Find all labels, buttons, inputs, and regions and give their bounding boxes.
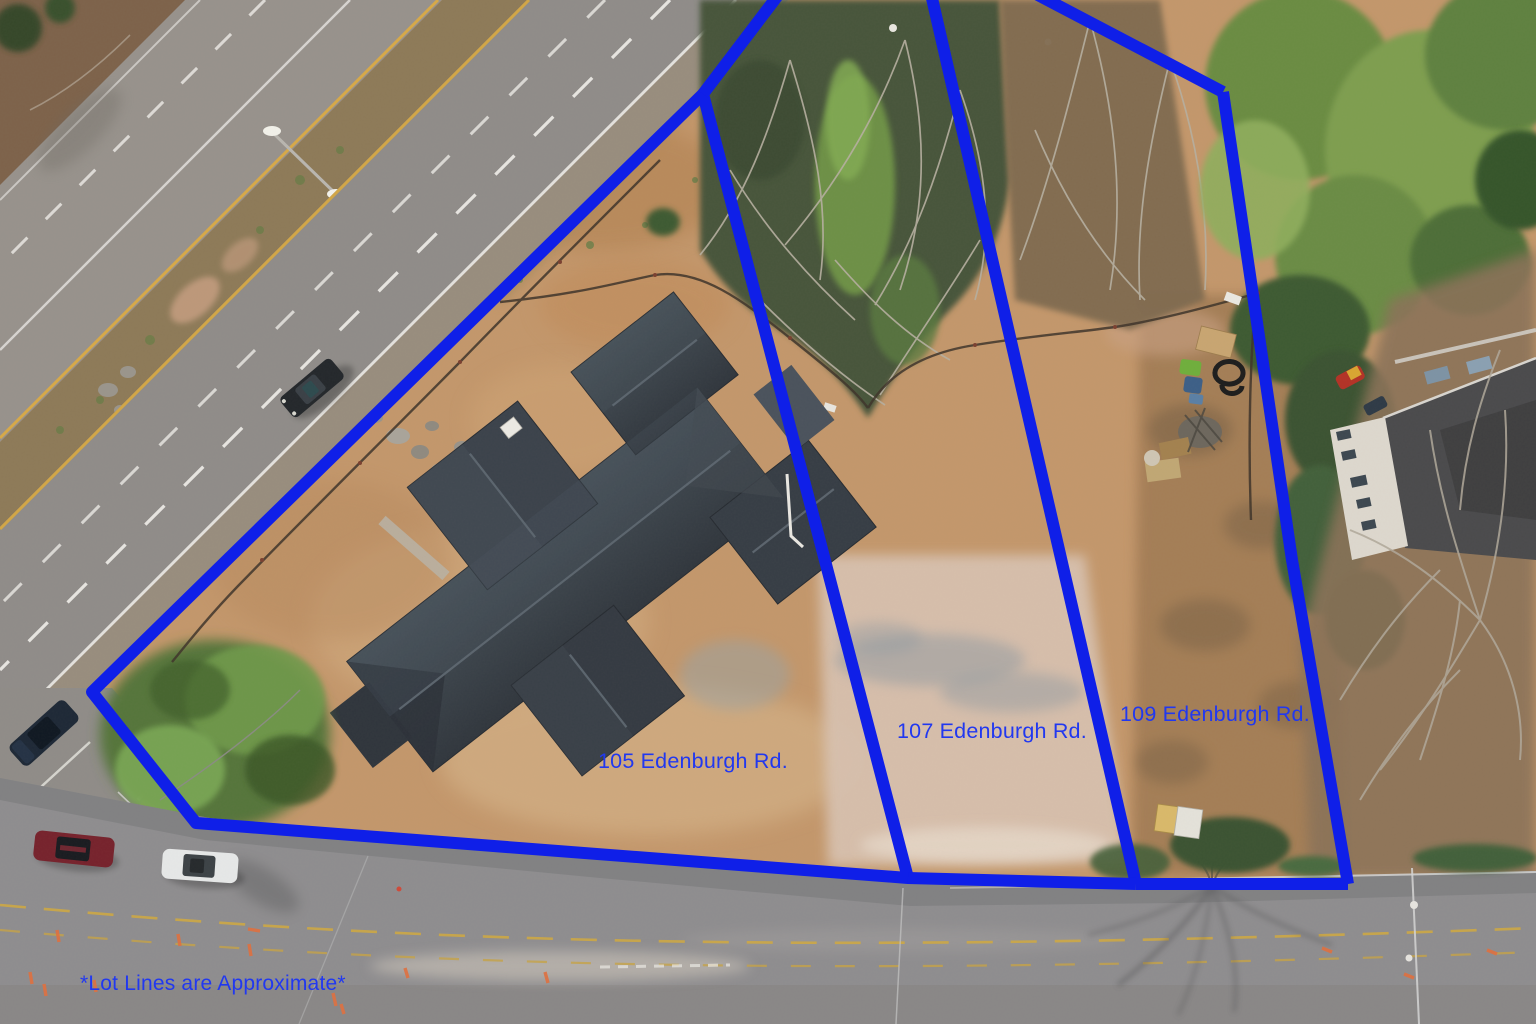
lot-107-label: 107 Edenburgh Rd. — [897, 719, 1087, 743]
lot-105-label: 105 Edenburgh Rd. — [598, 749, 788, 773]
scene-canvas: 105 Edenburgh Rd. 107 Edenburgh Rd. 109 … — [0, 0, 1536, 1024]
aerial-lot-photo: 105 Edenburgh Rd. 107 Edenburgh Rd. 109 … — [0, 0, 1536, 1024]
lot-109-label: 109 Edenburgh Rd. — [1120, 702, 1310, 726]
lot-lines-disclaimer: *Lot Lines are Approximate* — [80, 972, 346, 995]
lot-107-bottom-edge — [908, 878, 1136, 884]
